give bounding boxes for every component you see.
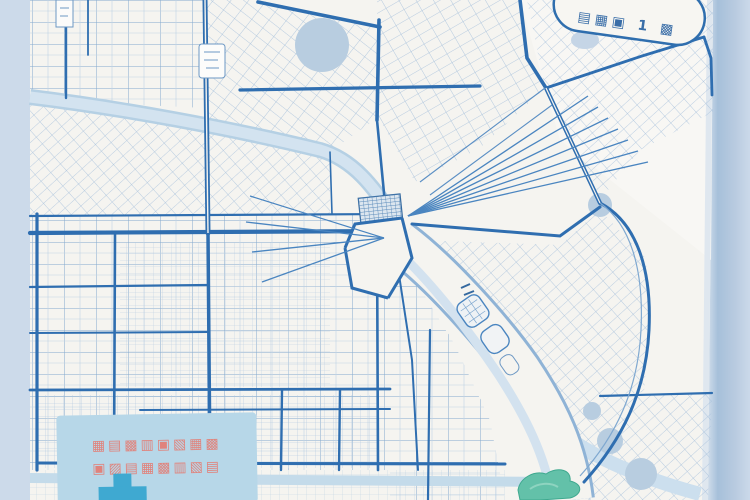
label-box-north <box>199 44 225 78</box>
city-map-canvas: ▤▦▣ 1 ▩ ▦▤▩▥▣▧▦▩ ▣▨▤▦▩▥▧▤ <box>0 0 750 500</box>
legend-panel-background <box>56 412 258 500</box>
legend-text-line2: ▣▨▤▦▩▥▧▤ <box>92 459 222 477</box>
pond-corner <box>625 458 657 490</box>
label-box-topleft <box>56 0 73 27</box>
pond-southeast-small <box>583 402 601 420</box>
map-artwork: ▤▦▣ 1 ▩ ▦▤▩▥▣▧▦▩ ▣▨▤▦▩▥▧▤ <box>0 0 750 500</box>
district-center-dense <box>120 242 330 387</box>
pond-north <box>295 18 349 72</box>
legend-text-line1: ▦▤▩▥▣▧▦▩ <box>92 436 222 454</box>
map-legend-panel: ▦▤▩▥▣▧▦▩ ▣▨▤▦▩▥▧▤ <box>56 412 258 500</box>
